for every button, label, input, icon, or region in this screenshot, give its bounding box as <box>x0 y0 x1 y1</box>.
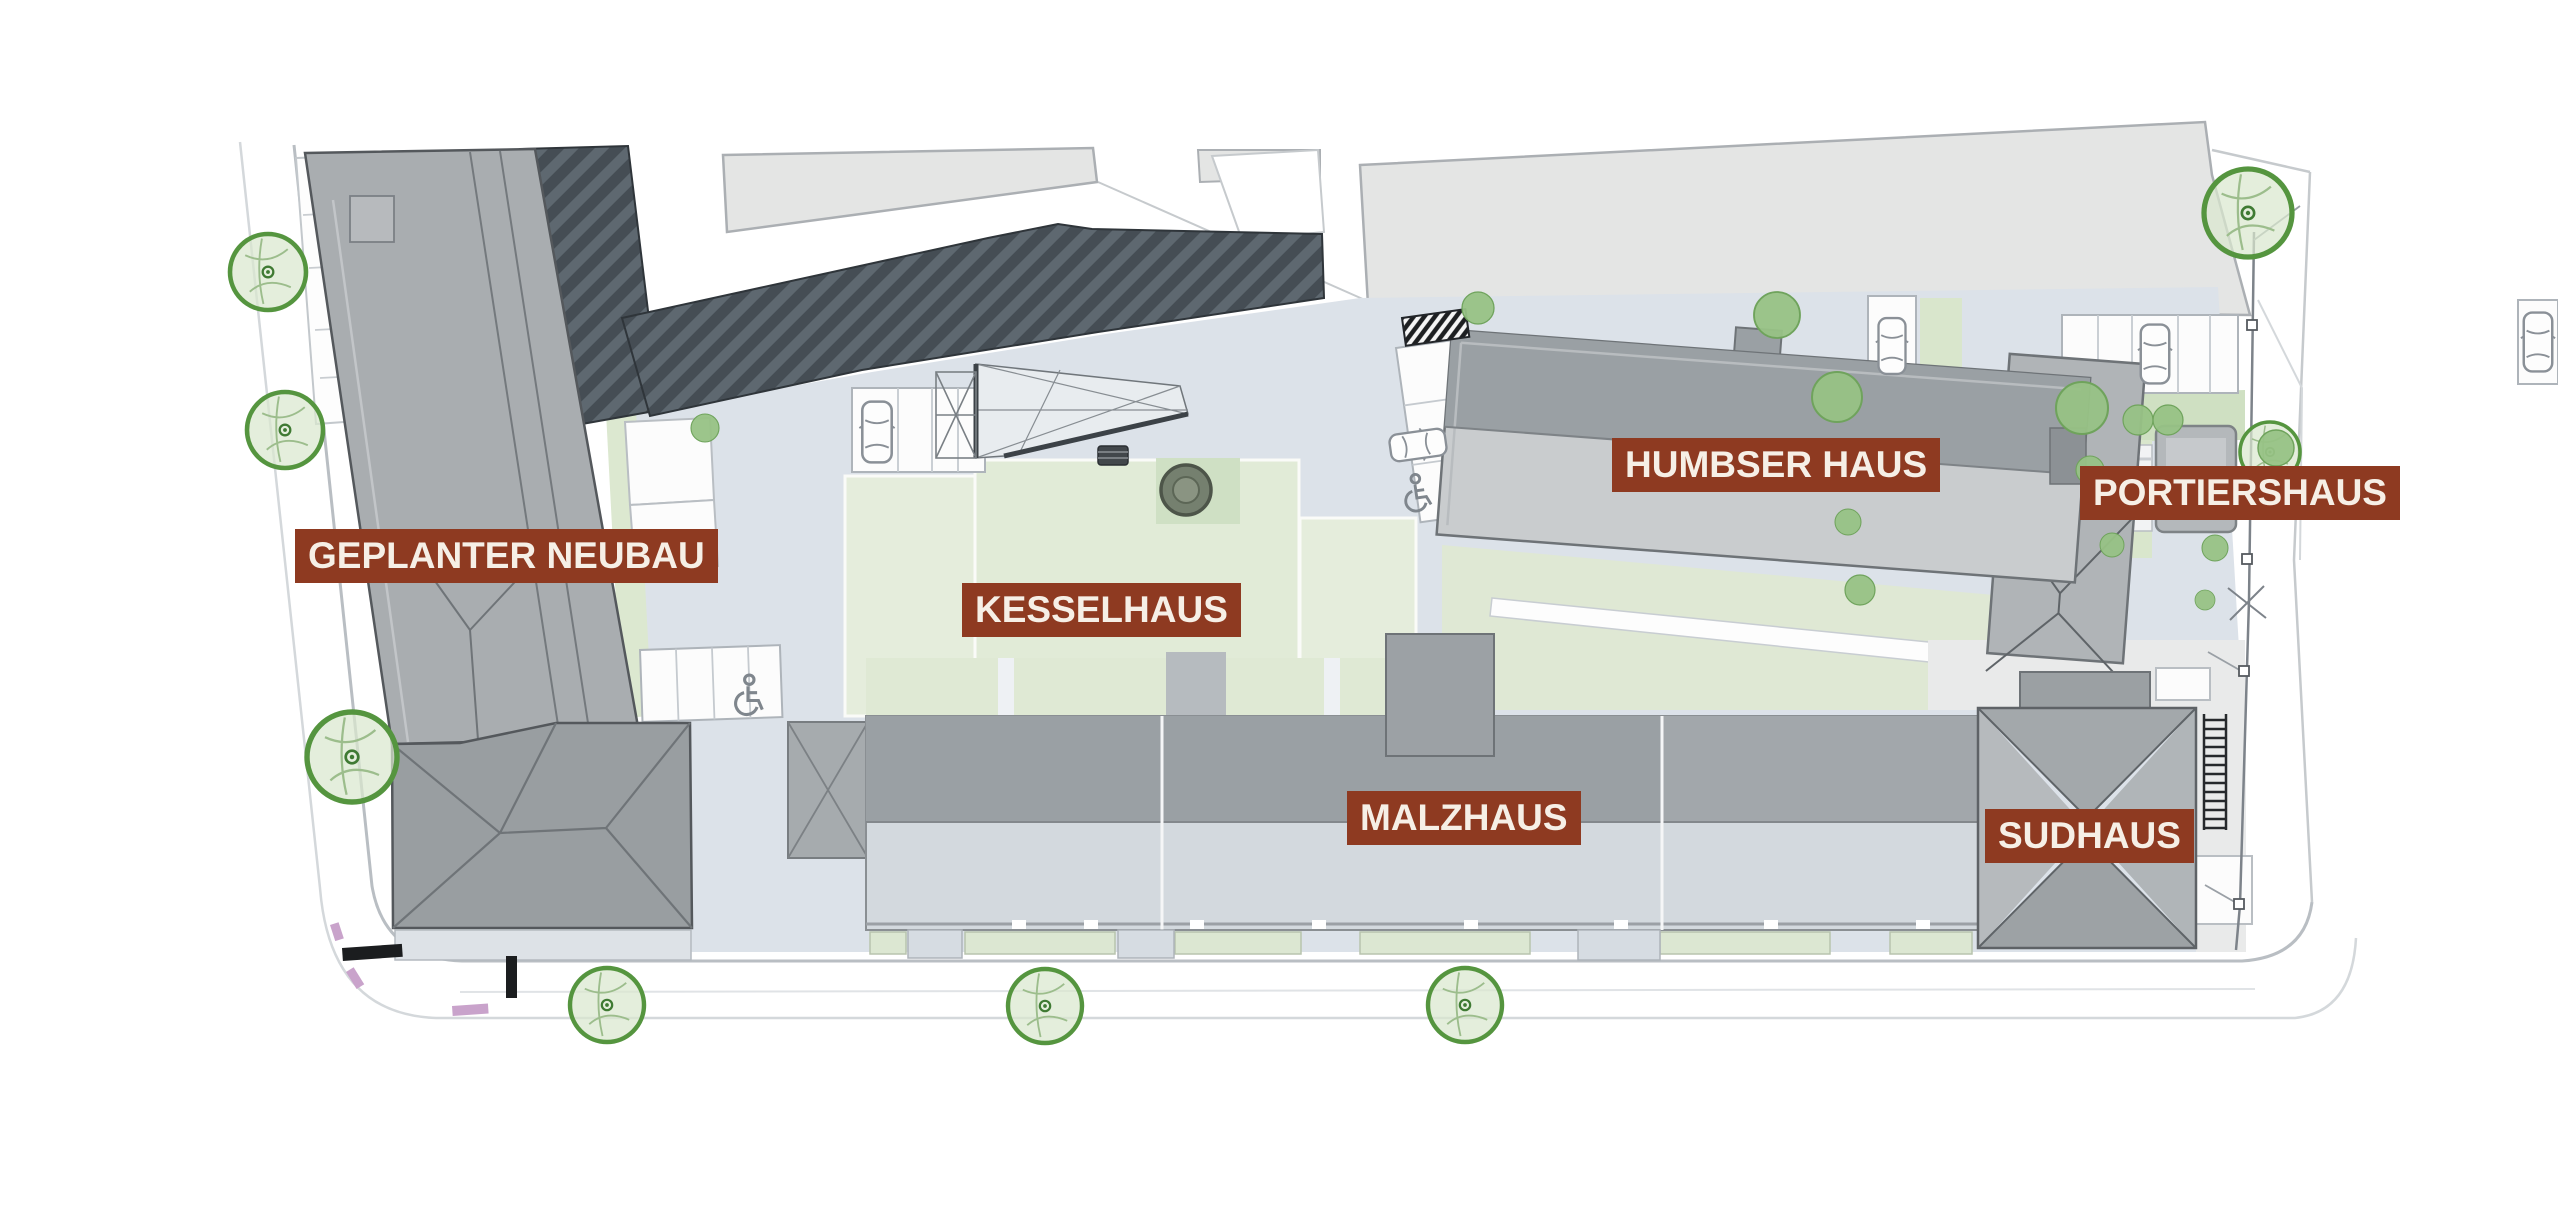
black-mark-2 <box>506 956 517 998</box>
neubau-plinth <box>395 930 691 960</box>
sudhaus-annex <box>2020 672 2150 712</box>
label-geplanter-neubau: GEPLANTER NEUBAU <box>295 529 718 583</box>
neighbor-outline-building <box>1212 150 1324 240</box>
small-tree-icon-drive-2 <box>1835 509 1861 535</box>
tree-icon-northeast <box>2204 169 2292 257</box>
malzhaus-porch-2 <box>1118 930 1174 958</box>
label-malzhaus: MALZHAUS <box>1347 791 1581 845</box>
fence-post-2 <box>2242 554 2252 564</box>
notch-7 <box>1764 920 1778 929</box>
small-tree-icon-ne-1 <box>2056 382 2108 434</box>
lawn-strip-s3 <box>1175 932 1301 954</box>
label-portiershaus: PORTIERSHAUS <box>2080 466 2400 520</box>
pink-mark-1 <box>330 922 344 941</box>
fence-post-1 <box>2247 320 2257 330</box>
tree-icon-bottom-2 <box>1008 969 1082 1043</box>
small-tree-icon-north-1 <box>1754 292 1800 338</box>
small-tree-icon-north-2 <box>1812 372 1862 422</box>
lawn-gap-2 <box>1324 658 1340 716</box>
connector-bridge <box>788 722 868 858</box>
parking-accessible-area <box>640 645 782 722</box>
lawn-gap-1 <box>998 658 1014 716</box>
malzhaus-roof-north-east <box>1662 716 1988 822</box>
notch-6 <box>1614 920 1628 929</box>
small-tree-icon-ne-6 <box>2202 535 2228 561</box>
neubau-south-wing-hip-roof <box>392 723 692 928</box>
lawn-strip-s1 <box>870 932 906 954</box>
small-tree-icon-ne-3 <box>2153 405 2183 435</box>
street-right-edge <box>2294 172 2312 902</box>
tree-icon-left-3 <box>307 712 397 802</box>
site-plan: GEPLANTER NEUBAU KESSELHAUS HUMBSER HAUS… <box>0 0 2558 1219</box>
car-icon-far-east <box>2521 313 2555 372</box>
street-center-line <box>460 989 2255 992</box>
lawn-strips-malzhaus-south <box>870 932 1972 954</box>
barrel-icon <box>1098 446 1128 465</box>
tree-icon-bottom-3 <box>1428 968 1502 1042</box>
small-tree-icon-east-fill <box>2258 430 2294 466</box>
small-tree-icon-humbser-nw <box>1462 292 1494 324</box>
notch-8 <box>1916 920 1930 929</box>
barrel-body <box>1098 446 1128 465</box>
building-garage-block <box>1386 634 1494 756</box>
small-tree-icon-drive-3 <box>1845 575 1875 605</box>
malzhaus-porch-1 <box>908 930 962 958</box>
notch-2 <box>1084 920 1098 929</box>
notch-1 <box>1012 920 1026 929</box>
tank-icon <box>1161 465 1211 515</box>
lawn-strip-malzhaus-north <box>866 658 1440 716</box>
tree-icon-left-1 <box>230 234 306 310</box>
notch-4 <box>1312 920 1326 929</box>
parking-accessible <box>640 645 782 722</box>
neighbor-block-east <box>1360 122 2250 315</box>
black-mark-1 <box>342 944 403 961</box>
site-plan-drawing <box>0 0 2558 1219</box>
fence-post-3 <box>2239 666 2249 676</box>
small-tree-icon-ne-5 <box>2100 533 2124 557</box>
tank-inner <box>1173 477 1199 503</box>
notch-3 <box>1190 920 1204 929</box>
tree-icon-left-2 <box>247 392 323 468</box>
lawn-strip-s6 <box>1890 932 1972 954</box>
fence-post-4 <box>2234 899 2244 909</box>
label-kesselhaus: KESSELHAUS <box>962 583 1241 637</box>
tree-icon-bottom-1 <box>570 968 644 1042</box>
lawn-strip-s2 <box>965 932 1115 954</box>
small-tree-icon-courtyard <box>691 414 719 442</box>
car-icon-north <box>1876 318 1908 374</box>
lawn-strip-s4 <box>1360 932 1530 954</box>
path-band-gray <box>1166 652 1226 716</box>
lawn-strip-s5 <box>1660 932 1830 954</box>
label-humbser-haus: HUMBSER HAUS <box>1612 438 1940 492</box>
car-icon-west <box>859 402 894 463</box>
pad-white-2 <box>2196 856 2252 924</box>
malzhaus-porch-3 <box>1578 930 1660 960</box>
neighbor-block-west <box>723 148 1097 232</box>
small-tree-icon-ne-7 <box>2195 590 2215 610</box>
pad-white-1 <box>2156 668 2210 700</box>
label-sudhaus: SUDHAUS <box>1985 809 2194 863</box>
notch-5 <box>1464 920 1478 929</box>
pink-mark-3 <box>452 1003 489 1015</box>
neubau-roof-notch <box>350 196 394 242</box>
small-tree-icon-ne-2 <box>2123 405 2153 435</box>
car-icon-northeast <box>2138 325 2172 384</box>
